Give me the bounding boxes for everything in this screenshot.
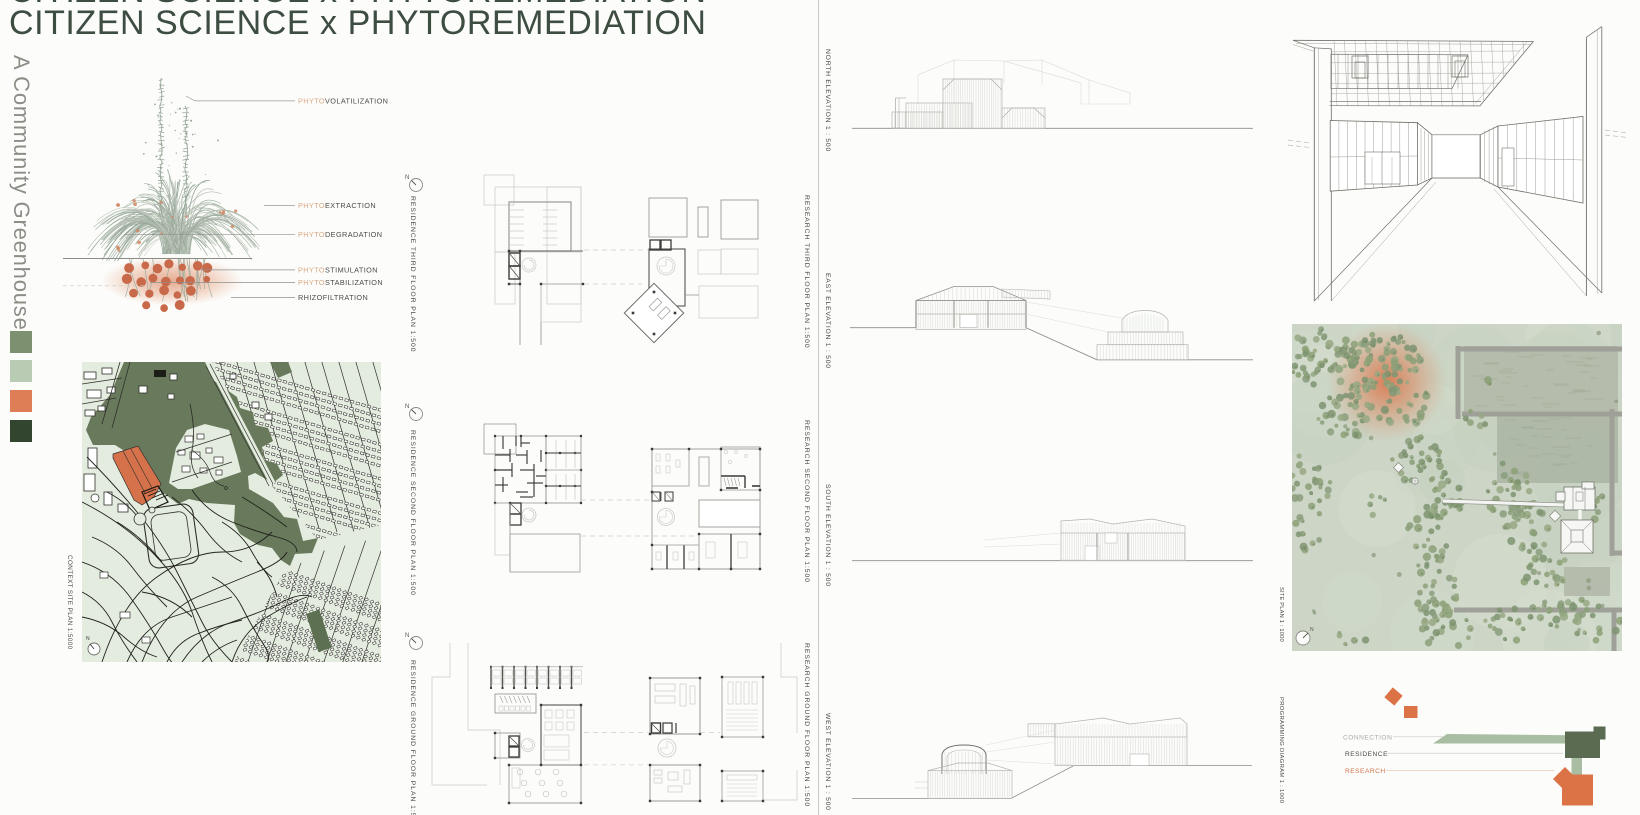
svg-text:N: N [1310,627,1314,633]
svg-text:N: N [405,175,409,181]
svg-text:PHYTOSTIMULATION: PHYTOSTIMULATION [298,265,378,274]
svg-text:PHYTOEXTRACTION: PHYTOEXTRACTION [298,201,376,210]
svg-text:CONNECTION: CONNECTION [1343,734,1392,741]
svg-text:RHIZOFILTRATION: RHIZOFILTRATION [298,293,368,302]
svg-text:N: N [405,633,409,639]
svg-text:RESIDENCE: RESIDENCE [1345,751,1388,758]
svg-text:RESEARCH: RESEARCH [1345,768,1386,775]
svg-text:N: N [405,404,409,410]
svg-text:PHYTODEGRADATION: PHYTODEGRADATION [298,230,382,239]
svg-text:PHYTOVOLATILIZATION: PHYTOVOLATILIZATION [298,96,388,105]
svg-text:N: N [86,636,90,642]
svg-text:PHYTOSTABILIZATION: PHYTOSTABILIZATION [298,278,383,287]
